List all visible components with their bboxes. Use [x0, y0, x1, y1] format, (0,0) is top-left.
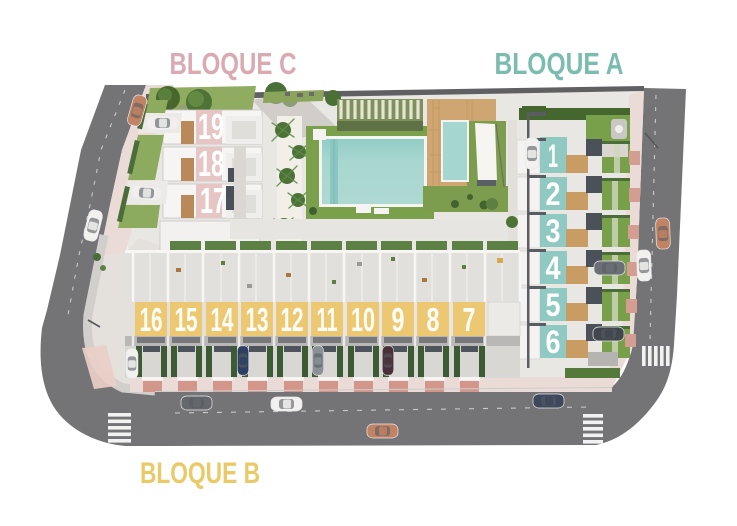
svg-text:6: 6 [546, 324, 561, 360]
svg-text:1: 1 [548, 138, 558, 174]
svg-text:4: 4 [546, 250, 561, 286]
svg-text:7: 7 [463, 301, 476, 338]
svg-text:14: 14 [211, 301, 234, 338]
svg-text:15: 15 [175, 301, 198, 338]
svg-text:BLOQUE C: BLOQUE C [170, 46, 297, 81]
svg-text:2: 2 [546, 176, 561, 212]
svg-text:BLOQUE B: BLOQUE B [140, 457, 260, 490]
svg-text:18: 18 [198, 143, 224, 184]
svg-text:10: 10 [351, 301, 375, 338]
svg-text:19: 19 [198, 106, 224, 147]
svg-text:3: 3 [546, 213, 561, 249]
svg-text:17: 17 [200, 180, 226, 221]
svg-text:13: 13 [246, 301, 269, 338]
svg-text:9: 9 [392, 301, 405, 338]
svg-text:8: 8 [427, 301, 440, 338]
svg-text:5: 5 [546, 287, 561, 323]
svg-text:16: 16 [140, 301, 163, 338]
svg-text:12: 12 [281, 301, 304, 338]
svg-text:11: 11 [317, 301, 338, 338]
svg-text:BLOQUE A: BLOQUE A [495, 46, 624, 81]
